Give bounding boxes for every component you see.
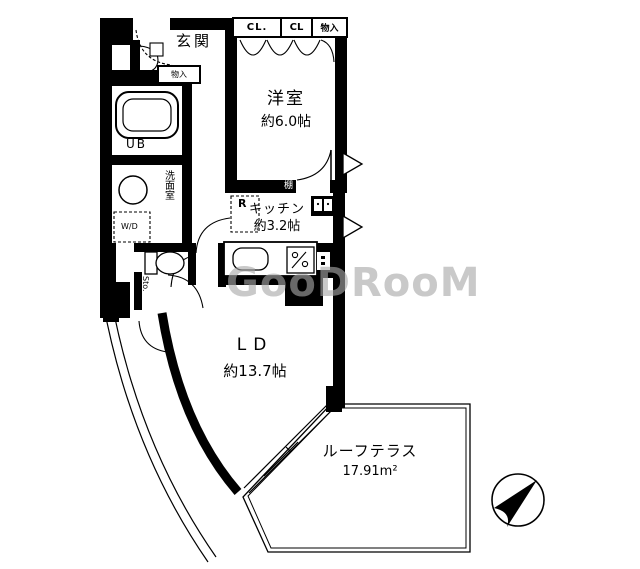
ld-label: LD 約13.7帖 <box>207 336 303 380</box>
shelf-label: 棚 <box>284 181 293 191</box>
closet-door-arc <box>267 40 293 55</box>
shoe-box <box>150 43 163 56</box>
floor-plan: 玄関 CL. CL 物入 物入 洋室 約6.0帖 UB 洗面室 W/D トイレ … <box>0 0 640 569</box>
bathtub-icon <box>116 92 178 138</box>
closet-label-row: CL. CL 物入 <box>232 17 346 38</box>
yoshitsu-label: 洋室 約6.0帖 <box>239 90 333 130</box>
sto-label: Sto. <box>141 276 150 308</box>
ub-label: UB <box>126 138 147 152</box>
sto-door-arc <box>168 275 203 308</box>
kitchen-counter <box>224 242 317 276</box>
terrace-label: ルーフテラス 17.91m² <box>300 443 440 480</box>
yoshitsu-name: 洋室 <box>239 90 333 110</box>
kitchen-label: キッチン 約3.2帖 <box>234 203 320 235</box>
compass-icon <box>492 474 544 527</box>
wall-openings <box>296 180 330 193</box>
closet-label-cl2: CL <box>280 17 313 38</box>
closet-label-cl1: CL. <box>232 17 282 38</box>
ld-name: LD <box>207 336 303 356</box>
kitchen-name: キッチン <box>234 203 320 218</box>
yoshitsu-size: 約6.0帖 <box>239 114 333 130</box>
senmen-label: 洗面室 <box>162 170 174 234</box>
toilet-label: トイレ <box>155 244 176 252</box>
floor-plan-linework <box>0 0 640 569</box>
closet-door-arc <box>321 40 334 62</box>
hall-storage-label: 物入 <box>157 65 201 84</box>
terrace-area: 17.91m² <box>300 465 440 480</box>
kitchen-size: 約3.2帖 <box>234 220 320 235</box>
closet-label-monoire: 物入 <box>311 17 348 38</box>
washbasin-icon <box>119 176 147 204</box>
toilet-icon <box>145 252 184 274</box>
terrace-name: ルーフテラス <box>300 443 440 460</box>
genkan-label: 玄関 <box>176 33 212 50</box>
closet-door-arc <box>294 40 320 55</box>
wd-label: W/D <box>121 222 138 231</box>
closet-door-arc <box>240 40 266 55</box>
ld-size: 約13.7帖 <box>207 363 303 380</box>
vent-icons <box>343 153 362 238</box>
yoshitsu-door-arc <box>297 150 331 180</box>
